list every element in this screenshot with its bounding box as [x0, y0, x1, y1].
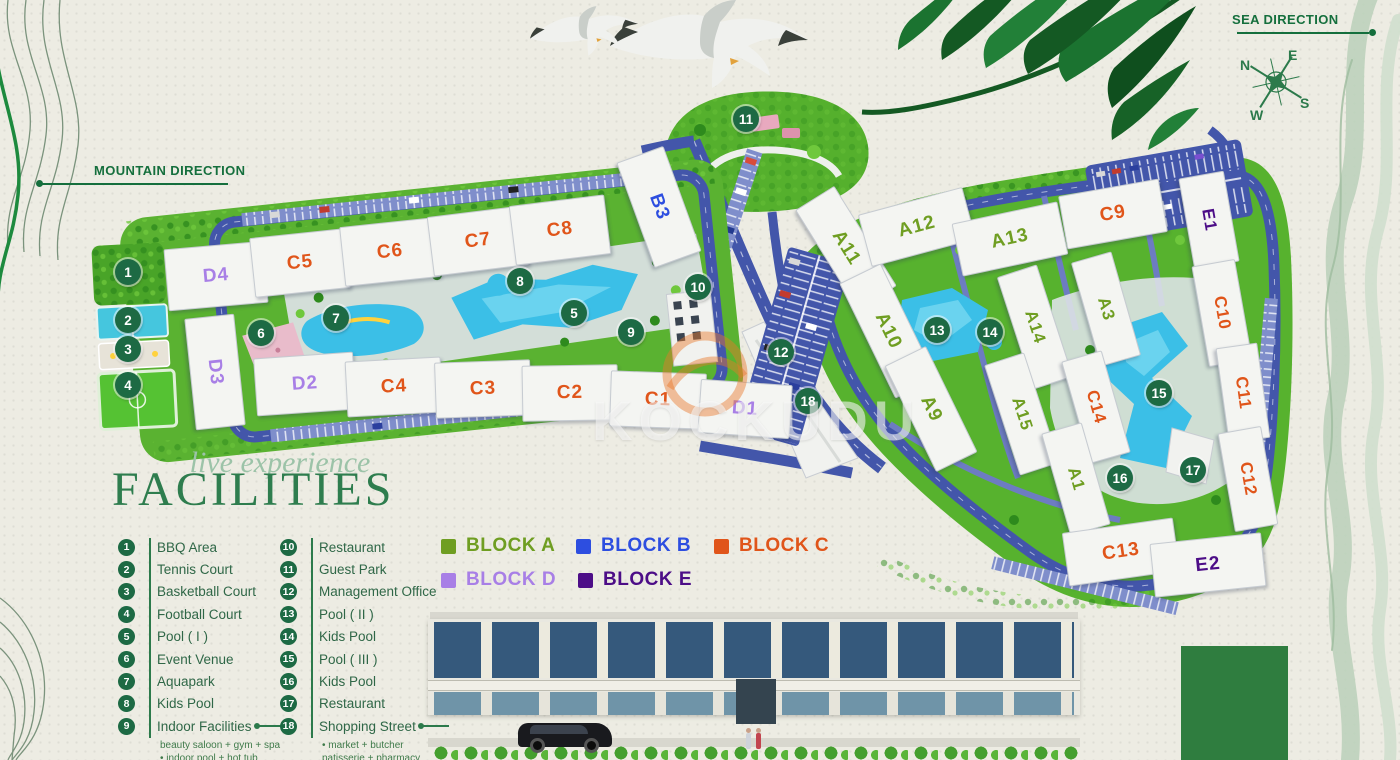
- legend-item-1: 1BBQ Area: [118, 536, 285, 558]
- map-marker-6: 6: [248, 320, 274, 346]
- legend-block-d: BLOCK D: [441, 569, 556, 591]
- map-marker-10: 10: [685, 274, 711, 300]
- building-render: [428, 610, 1080, 760]
- legend-item-6: 6Event Venue: [118, 648, 285, 670]
- render-facade: [428, 619, 1080, 715]
- facilities-legend-col2: 10Restaurant 11Guest Park 12Management O…: [280, 536, 449, 738]
- block-c-swatch: [714, 539, 729, 554]
- render-entrance: [736, 679, 776, 724]
- building-c8: C8: [509, 194, 612, 265]
- map-marker-14: 14: [977, 319, 1003, 345]
- legend-item-17: 17Restaurant: [280, 693, 449, 715]
- building-c6: C6: [339, 217, 441, 287]
- render-upper-windows: [434, 622, 1074, 678]
- contour-lines-bottomleft: [0, 598, 45, 760]
- legend-item-7: 7Aquapark: [118, 670, 285, 692]
- compass-w: W: [1250, 107, 1264, 123]
- compass-e: E: [1288, 47, 1297, 63]
- block-a-swatch: [441, 539, 456, 554]
- car-wheel-front: [530, 738, 545, 753]
- facilities-legend-col1: 1BBQ Area 2Tennis Court 3Basketball Cour…: [118, 536, 285, 738]
- person-1: [746, 733, 751, 749]
- map-marker-15: 15: [1146, 380, 1172, 406]
- map-marker-9: 9: [618, 319, 644, 345]
- legend-item-9: 9Indoor Facilities: [118, 715, 285, 737]
- mountain-direction-line: [42, 183, 228, 185]
- mountain-direction-label: MOUNTAIN DIRECTION: [94, 163, 245, 178]
- block-b-swatch: [576, 539, 591, 554]
- sea-direction-dot: [1369, 29, 1376, 36]
- compass-rose: N E S W: [1228, 44, 1328, 128]
- watermark-text: KOCKUDU: [592, 388, 920, 453]
- palm-leaf: [862, 0, 1199, 150]
- legend-item-15: 15Pool ( III ): [280, 648, 449, 670]
- legend-block-b: BLOCK B: [576, 535, 691, 557]
- compass-s: S: [1300, 95, 1309, 111]
- legend-item-11: 11Guest Park: [280, 558, 449, 580]
- map-marker-4: 4: [115, 372, 141, 398]
- building-d2: D2: [253, 352, 357, 417]
- map-marker-2: 2: [115, 307, 141, 333]
- legend-item-5: 5Pool ( I ): [118, 626, 285, 648]
- contour-thick-line: [0, 40, 19, 310]
- car-glass: [530, 725, 588, 734]
- map-marker-17: 17: [1180, 457, 1206, 483]
- render-roofline: [430, 612, 1078, 619]
- indoor-facilities-notes: beauty saloon + gym + spa indoor pool + …: [160, 739, 280, 760]
- map-marker-13: 13: [924, 317, 950, 343]
- compass-n: N: [1240, 57, 1250, 73]
- map-marker-1: 1: [115, 259, 141, 285]
- legend-item-16: 16Kids Pool: [280, 670, 449, 692]
- map-marker-8: 8: [507, 268, 533, 294]
- legend-item-2: 2Tennis Court: [118, 558, 285, 580]
- map-marker-11: 11: [733, 106, 759, 132]
- mountain-direction-dot: [36, 180, 43, 187]
- map-marker-7: 7: [323, 305, 349, 331]
- legend-item-3: 3Basketball Court: [118, 581, 285, 603]
- wave-bands-right: [1325, 0, 1398, 760]
- map-marker-12: 12: [768, 339, 794, 365]
- masterplan-page: { "directions": { "sea": "SEA DIRECTION"…: [0, 0, 1400, 760]
- legend-block-c: BLOCK C: [714, 535, 829, 557]
- map-marker-16: 16: [1107, 465, 1133, 491]
- legend-item-12: 12Management Office: [280, 581, 449, 603]
- block-d-swatch: [441, 573, 456, 588]
- note-leader: [423, 725, 449, 727]
- sea-direction-label: SEA DIRECTION: [1232, 12, 1339, 27]
- legend-item-10: 10Restaurant: [280, 536, 449, 558]
- building-c4: C4: [345, 357, 444, 418]
- person-2: [756, 733, 761, 749]
- legend-block-e: BLOCK E: [578, 569, 692, 591]
- green-rectangle: [1181, 646, 1288, 760]
- building-c5: C5: [249, 228, 351, 298]
- page-title: FACILITIES: [112, 462, 394, 517]
- legend-item-14: 14Kids Pool: [280, 626, 449, 648]
- legend-block-a: BLOCK A: [441, 535, 555, 557]
- map-marker-5: 5: [561, 300, 587, 326]
- legend-item-13: 13Pool ( II ): [280, 603, 449, 625]
- legend-item-18: 18Shopping Street: [280, 715, 449, 737]
- seagulls: [527, 0, 808, 88]
- car-wheel-rear: [584, 738, 599, 753]
- contour-lines-topleft: [7, 0, 79, 260]
- legend-item-4: 4Football Court: [118, 603, 285, 625]
- map-marker-3: 3: [115, 336, 141, 362]
- building-c3: C3: [434, 359, 532, 418]
- shopping-street-notes: market + butcher patisserie + pharmacy: [322, 739, 420, 760]
- legend-item-8: 8Kids Pool: [118, 693, 285, 715]
- sea-direction-line: [1237, 32, 1369, 34]
- suv-car: [518, 721, 612, 753]
- block-e-swatch: [578, 573, 593, 588]
